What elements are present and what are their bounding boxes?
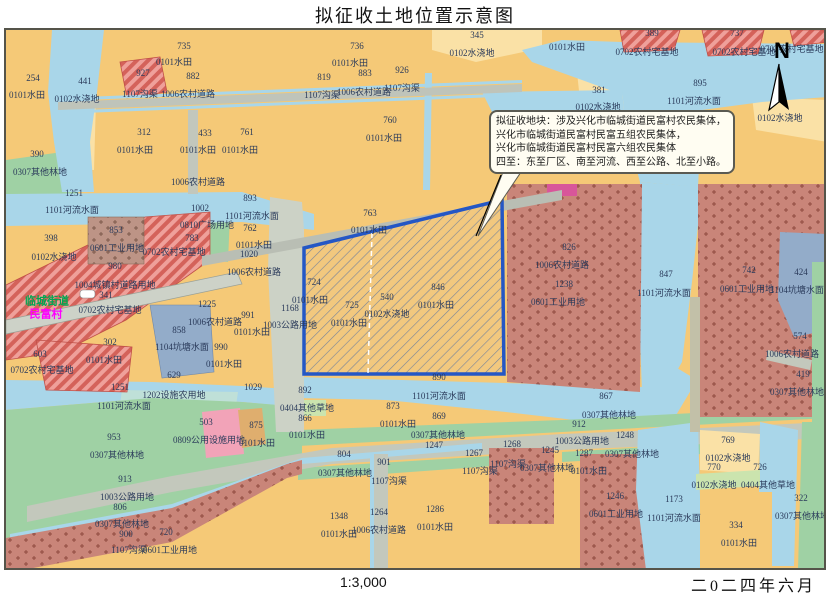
small-paddy-parcel bbox=[238, 408, 266, 448]
callout-line: 拟征收地块：涉及兴化市临城街道民富村农民集体， bbox=[496, 115, 728, 129]
forest-right-strip bbox=[812, 262, 826, 422]
map-date: 二0二四年六月 bbox=[691, 572, 816, 596]
north-label: N bbox=[774, 38, 790, 64]
public-facility-parcel bbox=[202, 408, 244, 458]
map-viewport: 7350101水田9278821107沟渠1006农村道路2540101水田44… bbox=[4, 28, 826, 570]
industrial-parcel-853 bbox=[88, 217, 144, 264]
callout-box: 拟征收地块：涉及兴化市临城街道民富村农民集体， 兴化市临城街道民富村民富五组农民… bbox=[489, 110, 735, 174]
callout-line: 兴化市临城街道民富村民富六组农民集体 bbox=[496, 142, 728, 156]
page-title: 拟征收土地位置示意图 bbox=[0, 2, 830, 28]
bridge-chip bbox=[80, 290, 95, 298]
irrigated-769 bbox=[700, 430, 760, 474]
land-acquisition-map-page: 拟征收土地位置示意图 bbox=[0, 0, 830, 596]
paddy-334 bbox=[700, 492, 772, 568]
forest-corner bbox=[798, 422, 826, 570]
map-scale: 1:3,000 bbox=[340, 574, 387, 590]
callout-line: 四至：东至厂区、南至河流、西至公路、北至小路。 bbox=[496, 156, 728, 170]
callout-line: 兴化市临城街道民富村民富五组农民集体， bbox=[496, 129, 728, 143]
